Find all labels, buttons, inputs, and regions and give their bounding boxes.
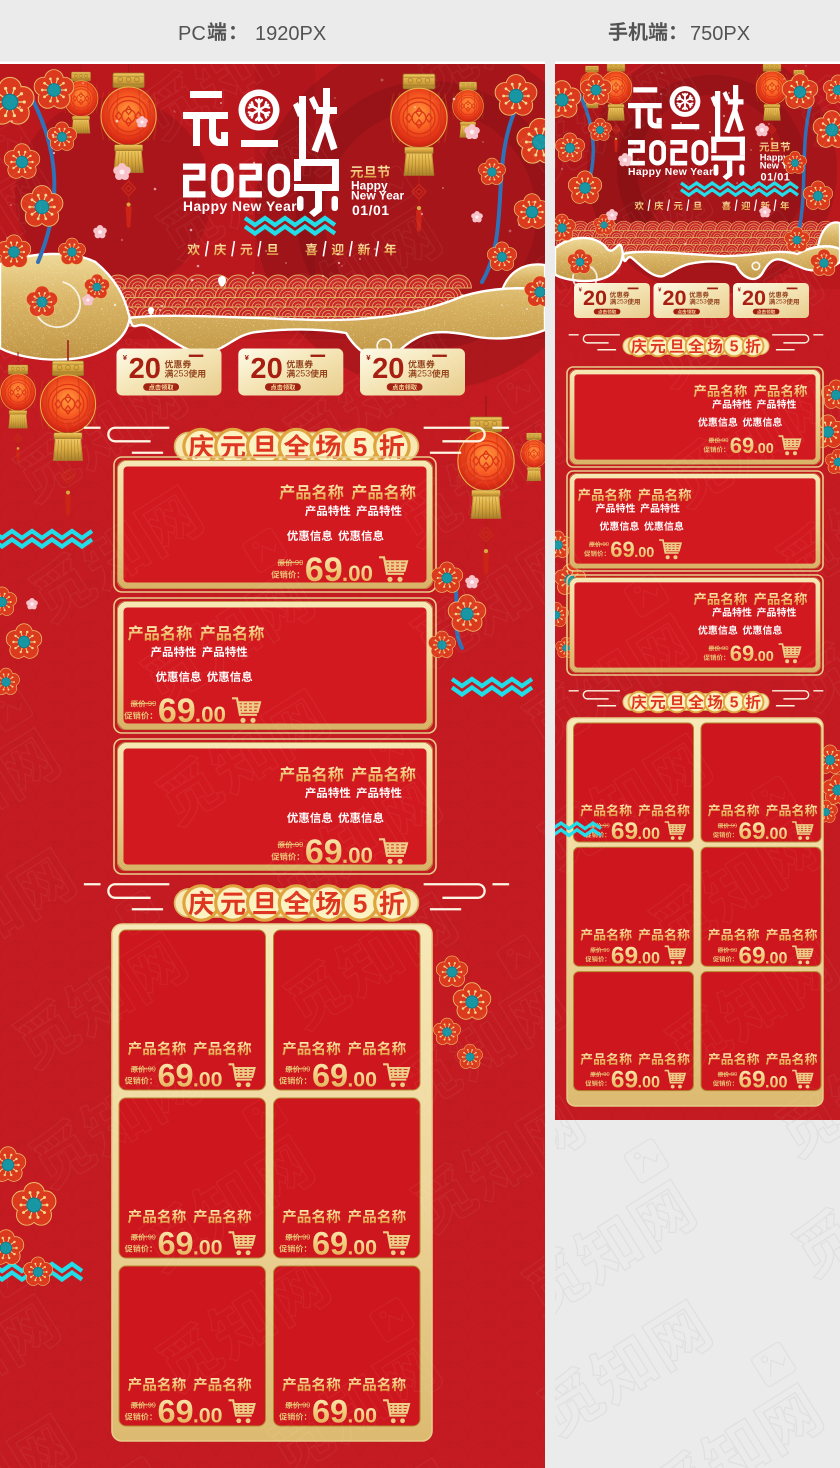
svg-text:PC: PC xyxy=(178,23,206,45)
svg-text:750PX: 750PX xyxy=(690,23,750,45)
svg-text:1920PX: 1920PX xyxy=(255,23,326,45)
